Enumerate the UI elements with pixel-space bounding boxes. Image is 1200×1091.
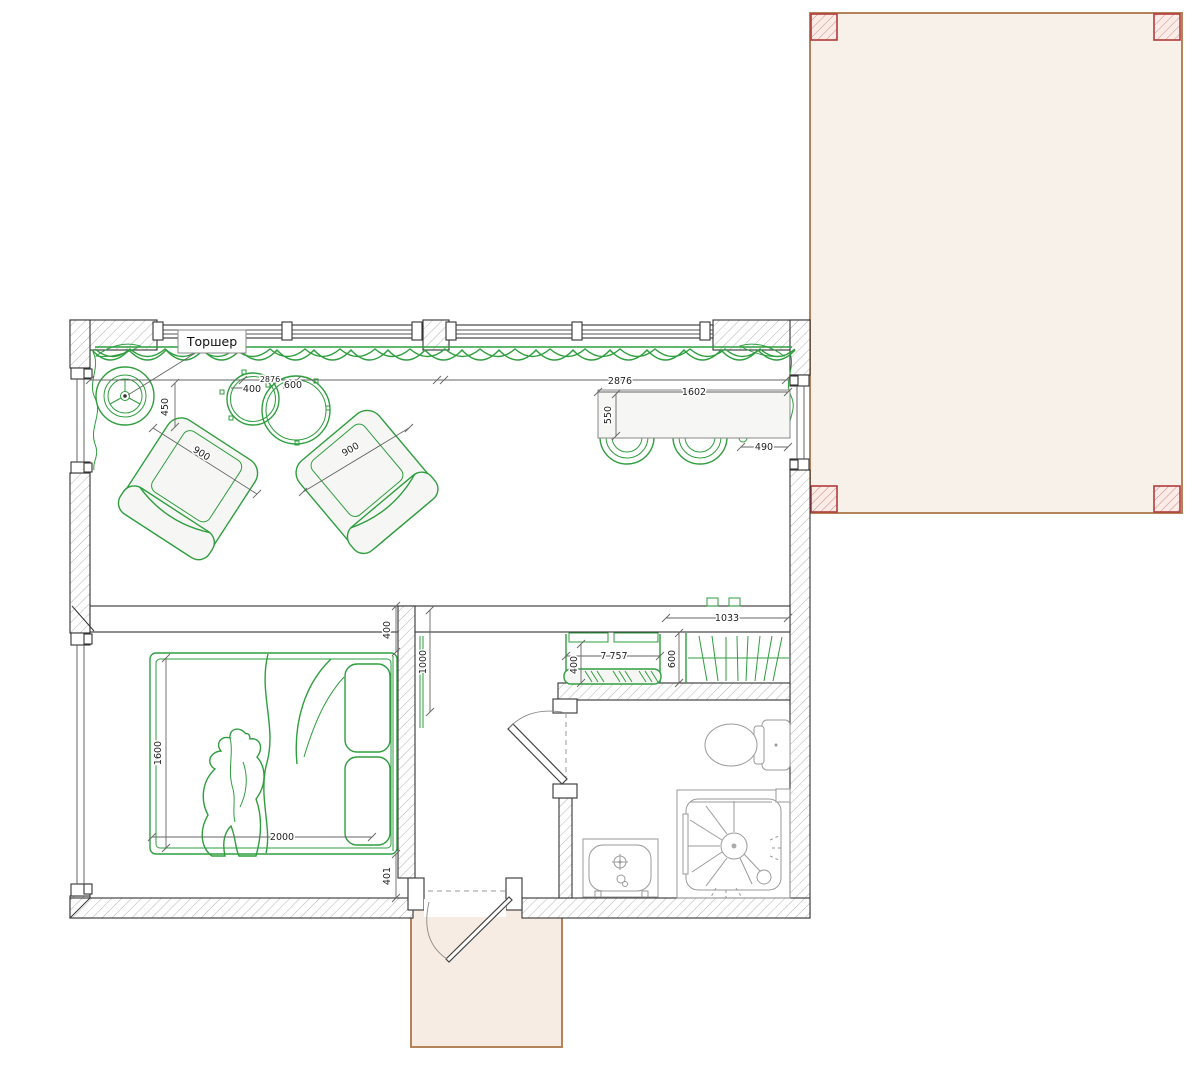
dim-passage: 1000 bbox=[418, 650, 429, 674]
terrace-post-top-left bbox=[811, 14, 837, 40]
shower bbox=[677, 789, 790, 898]
terrace-post-bottom-right bbox=[1154, 486, 1180, 512]
dim-dining-depth: 550 bbox=[603, 406, 614, 424]
wall-bracket bbox=[729, 598, 740, 606]
armchair-right bbox=[289, 403, 443, 558]
dim-wardrobe-depth: 600 bbox=[667, 650, 678, 668]
dim-table-to-wall: 490 bbox=[755, 442, 773, 453]
floor-lamp-label: Торшер bbox=[186, 334, 237, 349]
bedroom-furniture bbox=[150, 636, 423, 856]
bathroom-door-leaf bbox=[508, 724, 567, 784]
dim-bench-width: 7 757 bbox=[600, 651, 627, 662]
dim-window-bay: 2876 bbox=[608, 376, 632, 387]
dim-large-table: 600 bbox=[284, 380, 302, 391]
armchair-left bbox=[114, 411, 265, 564]
bathroom-fixtures bbox=[583, 720, 790, 898]
dim-bed-head-gap: 400 bbox=[382, 621, 393, 639]
hall-mirror bbox=[420, 636, 423, 728]
pillow bbox=[345, 664, 390, 752]
dim-bed-length: 2000 bbox=[270, 832, 294, 843]
terrace bbox=[810, 13, 1182, 513]
dim-bed-foot-gap: 401 bbox=[382, 867, 393, 885]
sink bbox=[583, 839, 658, 897]
dining-chairs bbox=[600, 437, 747, 464]
curtain-tail-left bbox=[92, 352, 97, 470]
blanket-edge bbox=[264, 654, 270, 853]
entrance-porch bbox=[411, 905, 562, 1047]
terrace-post-bottom-left bbox=[811, 486, 837, 512]
floor-plan: 450 400 2876 600 900 900 2876 1602 550 4… bbox=[0, 0, 1200, 1091]
wall-bracket bbox=[707, 598, 718, 606]
floor-lamp bbox=[96, 367, 154, 425]
dim-lamp-to-chair: 450 bbox=[160, 398, 171, 416]
bathroom-door bbox=[508, 699, 577, 798]
bed bbox=[150, 653, 397, 854]
wardrobe-hangers bbox=[686, 633, 789, 683]
blanket-fold bbox=[296, 659, 331, 764]
toilet bbox=[705, 720, 790, 770]
dim-bay-small: 2876 bbox=[260, 375, 280, 384]
blanket-fold bbox=[304, 677, 344, 757]
dim-bench-depth: 400 bbox=[569, 656, 580, 674]
dim-small-table: 400 bbox=[243, 384, 261, 395]
dim-bed-width: 1600 bbox=[153, 741, 164, 765]
dim-wardrobe-width: 1033 bbox=[715, 613, 739, 624]
pillow bbox=[345, 757, 390, 845]
dim-dining-length: 1602 bbox=[682, 387, 706, 398]
terrace-post-top-right bbox=[1154, 14, 1180, 40]
